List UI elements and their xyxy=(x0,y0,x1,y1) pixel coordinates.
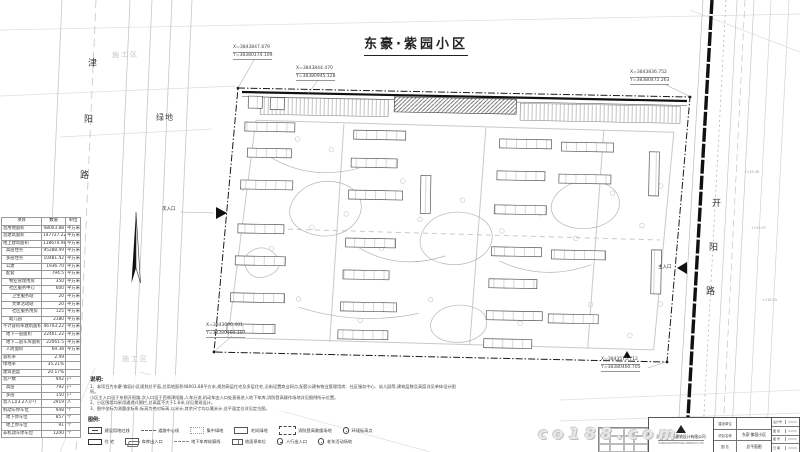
table-row: 高层住宅95288.49平方米 xyxy=(2,248,81,256)
stat-value: 22061.5 xyxy=(42,339,66,347)
stat-label: 不计容积率建筑面积 xyxy=(2,324,42,332)
legend-row: 住 宅车库出入口地下车库轮廓线地面停车位人行出入口老年活动场地 xyxy=(88,436,508,447)
side-label: 图 别 xyxy=(772,429,786,433)
spot-elevation: +119.46 xyxy=(744,170,759,174)
company-name-en: HUNAN ARCHITECTURAL DESIGN CO.,LTD xyxy=(658,440,703,445)
legend-item: 建设用地红线 xyxy=(88,427,130,434)
stat-label: 社区服务中心 xyxy=(2,286,42,294)
legend-label: 车库出入口 xyxy=(142,439,163,445)
stat-unit: 户 xyxy=(66,392,81,400)
stat-unit: 个 xyxy=(66,415,81,423)
stat-label: 总户数 xyxy=(2,377,42,385)
north-compass xyxy=(132,212,141,283)
stat-label: 容积率 xyxy=(2,354,42,362)
table-row: 地上建筑面积118674.98平方米 xyxy=(2,240,81,248)
table-row: 物业管理用房350平方米 xyxy=(2,278,81,286)
title-block-row: 项目名称东豪·紫园小区 xyxy=(714,430,771,442)
stat-unit: 户 xyxy=(66,385,81,393)
spot-elevation: +118.35 xyxy=(762,298,777,302)
table-row: 卫生服务站20平方米 xyxy=(2,293,81,301)
stat-value: 857 xyxy=(42,415,66,423)
fire-rescue-site-symbol xyxy=(279,426,296,435)
table-row: 地上停车位91个 xyxy=(2,423,81,431)
legend-label: 人行出入口 xyxy=(286,439,307,445)
stat-label: 地下一层面积 xyxy=(2,331,42,339)
green-area-label: 绿地 xyxy=(156,112,174,123)
field-value: 总平面图 xyxy=(737,441,771,452)
table-row: 绿地率35.21% xyxy=(2,362,81,370)
legend-item: 住 宅 xyxy=(88,439,114,445)
table-header-row: 项目数值单位 xyxy=(2,218,81,226)
stat-value: 46703.22 xyxy=(42,324,66,332)
legend-label: 住 宅 xyxy=(105,439,115,445)
construction-zone-label: 施工区 xyxy=(122,354,149,364)
coordinate-y: Y=38380160.107 xyxy=(206,331,245,339)
legend-label: 消防登高救援场地 xyxy=(298,428,332,434)
title-block-row: 建设单位 xyxy=(714,418,771,430)
field-value: 东豪·紫园小区 xyxy=(737,430,771,441)
table-row: 总建筑面积147727.22平方米 xyxy=(2,233,81,241)
stat-label: 地下二层车库面积 xyxy=(2,339,42,347)
stat-unit xyxy=(66,362,81,370)
main-entrance-marker xyxy=(677,262,687,274)
site-statistics-table: 项目数值单位总用地面积48003.88平方米总建筑面积147727.22平方米地… xyxy=(1,217,80,438)
legend-item: 人行出入口 xyxy=(277,438,307,445)
table-row: 多层住宅10481.42平方米 xyxy=(2,255,81,263)
table-row: 建筑密度20.17% xyxy=(2,369,81,377)
stat-unit: 平方米 xyxy=(66,271,81,279)
elderly-activity-symbol xyxy=(318,438,325,445)
stat-value: 2919 xyxy=(42,400,66,408)
table-row: 社区服务中心600平方米 xyxy=(2,286,81,294)
stat-unit: 户 xyxy=(66,377,81,385)
stat-unit: 平方米 xyxy=(66,233,81,241)
coordinate-callout: X=3843575.712 Y=38380460.705 xyxy=(601,357,640,372)
stat-value: 1200 xyxy=(42,430,66,438)
coordinate-x: X=3843836.752 xyxy=(630,70,669,78)
title-block: 湖南省广电建筑设计有限公司 HUNAN ARCHITECTURAL DESIGN… xyxy=(648,417,800,452)
coordinate-callout: X=3843844.470 Y=38380945.128 xyxy=(296,66,335,81)
table-row: 地下停车位857个 xyxy=(2,415,81,423)
right-road-lines xyxy=(677,0,789,452)
surface-parking-symbol xyxy=(232,439,243,445)
stat-label: 人防面积 xyxy=(2,347,42,355)
legend-item: 宅间绿地 xyxy=(234,427,267,434)
legend-row: 建设用地红线道路中心线集中绿地宅间绿地消防登高救援场地环境标高点 xyxy=(88,425,508,436)
garage-entrance-symbol xyxy=(125,438,139,445)
note-line: 1、本项目为东豪·紫园小区规划总平面,总用地面积48003.88平方米,规划高层… xyxy=(90,384,462,395)
table-row: 文体活动站20平方米 xyxy=(2,301,81,309)
table-row: 地下一层面积22461.22平方米 xyxy=(2,331,81,339)
stat-value: 948 xyxy=(42,407,66,415)
stat-value: 147727.22 xyxy=(42,233,66,241)
pedestrian-entry-symbol xyxy=(277,438,284,445)
right-road-label-char: 阳 xyxy=(709,240,718,253)
side-row: 设计号 xyxy=(772,418,799,427)
title-block-side: 设计号图 别图 号日 期 xyxy=(771,418,799,452)
legend-label: 道路中心线 xyxy=(158,428,179,434)
secondary-entrance-marker xyxy=(216,207,227,219)
legend-label: 地下车库轮廓线 xyxy=(191,439,220,445)
legend-label: 宅间绿地 xyxy=(251,428,268,434)
central-green-symbol xyxy=(190,427,204,434)
stat-value: 10481.42 xyxy=(42,255,66,263)
stat-unit: 平方米 xyxy=(66,286,81,294)
notes-heading: 说明: xyxy=(90,375,462,383)
elevation-point-symbol xyxy=(343,427,350,434)
table-header: 项目 xyxy=(2,218,42,226)
legend-label: 老年活动场地 xyxy=(327,439,352,445)
table-row: 多层150户 xyxy=(2,392,81,400)
stat-label: 配套 xyxy=(2,271,42,279)
construction-zone-label: 施工区 xyxy=(112,50,139,61)
stat-unit: 平方米 xyxy=(66,255,81,263)
stat-unit: 平方米 xyxy=(66,301,81,309)
courtyard-green-symbol xyxy=(234,427,248,434)
stat-value: 1936.70 xyxy=(42,263,66,271)
stat-value: 20 xyxy=(42,301,66,309)
legend-item: 车库出入口 xyxy=(125,438,162,445)
residence-symbol xyxy=(88,439,102,445)
table-row: 非机动车停车位1200个 xyxy=(2,430,81,438)
stat-value: 600 xyxy=(42,286,66,294)
side-label: 图 号 xyxy=(772,437,786,441)
coordinate-x: X=3843844.470 xyxy=(296,66,335,74)
legend-item: 集中绿地 xyxy=(190,427,223,434)
coordinate-y: Y=38380945.128 xyxy=(296,74,335,82)
stat-value: 35.21% xyxy=(42,362,66,370)
stat-label: 总建筑面积 xyxy=(2,233,42,241)
stat-unit xyxy=(66,354,81,362)
stat-unit: 平方米 xyxy=(66,347,81,355)
stat-label: 非机动车停车位 xyxy=(2,430,42,438)
stat-value: 2.49 xyxy=(42,354,66,362)
secondary-entrance-label: 次入口 xyxy=(162,206,176,212)
legend-item: 地下车库轮廓线 xyxy=(174,439,221,445)
left-road-label-char: 阳 xyxy=(84,112,93,125)
stat-unit: 平方米 xyxy=(66,316,81,324)
table-row: 总人口(3.2人/户)2919人 xyxy=(2,400,81,408)
legend-heading: 图例: xyxy=(88,416,508,423)
stat-label: 机动车停车位 xyxy=(2,407,42,415)
main-entrance-label: 主入口 xyxy=(658,264,672,270)
stat-unit xyxy=(66,369,81,377)
stat-label: 地上停车位 xyxy=(2,423,42,431)
legend-label: 建设用地红线 xyxy=(105,428,130,434)
stat-value: 95288.49 xyxy=(42,248,66,256)
stat-label: 绿地率 xyxy=(2,362,42,370)
stat-label: 总用地面积 xyxy=(2,225,42,233)
notes-block: 说明: 1、本项目为东豪·紫园小区规划总平面,总用地面积48003.88平方米,… xyxy=(90,375,462,411)
stat-value: 91 xyxy=(42,423,66,431)
page-title: 东豪·紫园小区 xyxy=(364,33,468,56)
side-label: 日 期 xyxy=(772,446,786,450)
table-row: 不计容积率建筑面积46703.22平方米 xyxy=(2,324,81,332)
stat-value: 125 xyxy=(42,309,66,317)
field-label: 项目名称 xyxy=(714,430,737,441)
spot-elevation: +119.37 xyxy=(751,226,766,230)
stat-label: 文体活动站 xyxy=(2,301,42,309)
stat-value: 794.5 xyxy=(42,271,66,279)
stat-value: 20 xyxy=(42,293,66,301)
coordinate-y: Y=38380174.109 xyxy=(233,53,272,61)
stat-label: 卫生服务站 xyxy=(2,293,42,301)
company-logo-icon xyxy=(676,425,686,433)
stat-value: 20.17% xyxy=(42,369,66,377)
stat-value: 150 xyxy=(42,392,66,400)
legend-label: 集中绿地 xyxy=(207,428,224,434)
stat-label: 公建 xyxy=(2,263,42,271)
coordinate-callout: X=3843696.401 Y=38380160.107 xyxy=(206,323,245,338)
table-row: 社区服务用房125平方米 xyxy=(2,309,81,317)
coordinate-x: X=3843847.679 xyxy=(233,45,272,53)
table-row: 机动车停车位948个 xyxy=(2,407,81,415)
table-header: 单位 xyxy=(66,218,81,226)
table-row: 幼儿园2180平方米 xyxy=(2,316,81,324)
coordinate-y: Y=38380472.263 xyxy=(630,78,669,86)
stat-unit: 平方米 xyxy=(66,293,81,301)
stat-unit: 个 xyxy=(66,423,81,431)
left-road-label-char: 津 xyxy=(88,56,97,69)
building-footprints xyxy=(227,96,665,351)
stat-label: 建筑密度 xyxy=(2,369,42,377)
side-row: 图 号 xyxy=(772,436,799,445)
table-row: 人防面积69.38平方米 xyxy=(2,347,81,355)
field-label: 建设单位 xyxy=(714,418,737,429)
stat-value: 22461.22 xyxy=(42,331,66,339)
company-cell: 湖南省广电建筑设计有限公司 HUNAN ARCHITECTURAL DESIGN… xyxy=(649,418,714,452)
stat-unit: 平方米 xyxy=(66,263,81,271)
side-label: 设计号 xyxy=(772,420,786,424)
stat-label: 多层住宅 xyxy=(2,255,42,263)
stat-label: 地下停车位 xyxy=(2,415,42,423)
side-row: 图 别 xyxy=(772,427,799,436)
stat-value: 118674.98 xyxy=(42,240,66,248)
stat-value: 48003.88 xyxy=(42,225,66,233)
stat-unit: 个 xyxy=(66,430,81,438)
right-road-label-char: 路 xyxy=(706,284,715,297)
stat-unit: 平方米 xyxy=(66,225,81,233)
table-row: 配套794.5平方米 xyxy=(2,271,81,279)
right-road-label-char: 开 xyxy=(712,196,721,209)
stat-label: 物业管理用房 xyxy=(2,278,42,286)
stat-unit: 平方米 xyxy=(66,240,81,248)
coordinate-callout: X=3843836.752 Y=38380472.263 xyxy=(630,70,669,85)
title-block-row: 图 名总平面图 xyxy=(714,441,771,452)
coordinate-callout: X=3843847.679 Y=38380174.109 xyxy=(233,45,272,60)
table-row: 高层792户 xyxy=(2,385,81,393)
table-row: 公建1936.70平方米 xyxy=(2,263,81,271)
note-line: 3、图中坐标为测量坐标系,标高为绝对标高,以米计,其余尺寸均以毫米计,总平面定位… xyxy=(90,406,462,411)
revision-grid xyxy=(598,427,649,452)
title-block-fields: 建设单位项目名称东豪·紫园小区图 名总平面图 xyxy=(714,418,771,452)
stat-label: 高层 xyxy=(2,385,42,393)
stat-unit: 平方米 xyxy=(66,331,81,339)
site-plan-drawing: 东豪·紫园小区 津 阳 路 开 阳 路 绿地 施工区 施工区 次入口 主入口 X… xyxy=(0,0,800,452)
stat-label: 地上建筑面积 xyxy=(2,240,42,248)
stat-unit: 平方米 xyxy=(66,339,81,347)
boundary-redline-symbol xyxy=(88,427,102,434)
table-row: 容积率2.49 xyxy=(2,354,81,362)
stat-value: 792 xyxy=(42,385,66,393)
legend-label: 地面停车位 xyxy=(245,439,266,445)
stat-unit: 个 xyxy=(66,407,81,415)
stat-value: 2180 xyxy=(42,316,66,324)
stat-unit: 平方米 xyxy=(66,324,81,332)
coordinate-x: X=3843575.712 xyxy=(601,357,640,365)
table-row: 总用地面积48003.88平方米 xyxy=(2,225,81,233)
stat-unit: 平方米 xyxy=(66,278,81,286)
stat-label: 高层住宅 xyxy=(2,248,42,256)
stat-unit: 平方米 xyxy=(66,309,81,317)
table-row: 总户数942户 xyxy=(2,377,81,385)
field-value xyxy=(737,418,771,429)
stat-unit: 人 xyxy=(66,400,81,408)
coordinate-x: X=3843696.401 xyxy=(206,323,245,331)
field-label: 图 名 xyxy=(714,441,737,452)
legend-item: 消防登高救援场地 xyxy=(279,426,332,435)
coordinate-y: Y=38380460.705 xyxy=(601,365,640,373)
table-row: 地下二层车库面积22061.5平方米 xyxy=(2,339,81,347)
basement-outline-symbol xyxy=(174,441,189,442)
legend-block: 图例: 建设用地红线道路中心线集中绿地宅间绿地消防登高救援场地环境标高点住 宅车… xyxy=(88,416,508,447)
internal-roads xyxy=(228,120,674,350)
legend-item: 环境标高点 xyxy=(343,427,373,434)
legend-item: 道路中心线 xyxy=(141,428,179,434)
stat-label: 幼儿园 xyxy=(2,316,42,324)
legend-item: 地面停车位 xyxy=(232,439,266,445)
stat-value: 350 xyxy=(42,278,66,286)
legend-item: 老年活动场地 xyxy=(318,438,352,445)
road-centerline-symbol xyxy=(141,430,156,431)
stat-unit: 平方米 xyxy=(66,248,81,256)
table-header: 数值 xyxy=(42,218,66,226)
stat-label: 多层 xyxy=(2,392,42,400)
left-road-label-char: 路 xyxy=(80,168,89,181)
stat-label: 总人口(3.2人/户) xyxy=(2,400,42,408)
stat-value: 69.38 xyxy=(42,347,66,355)
plan-interior xyxy=(227,94,681,352)
legend-label: 环境标高点 xyxy=(352,428,373,434)
stat-label: 社区服务用房 xyxy=(2,309,42,317)
stat-value: 942 xyxy=(42,377,66,385)
side-row: 日 期 xyxy=(772,444,799,452)
